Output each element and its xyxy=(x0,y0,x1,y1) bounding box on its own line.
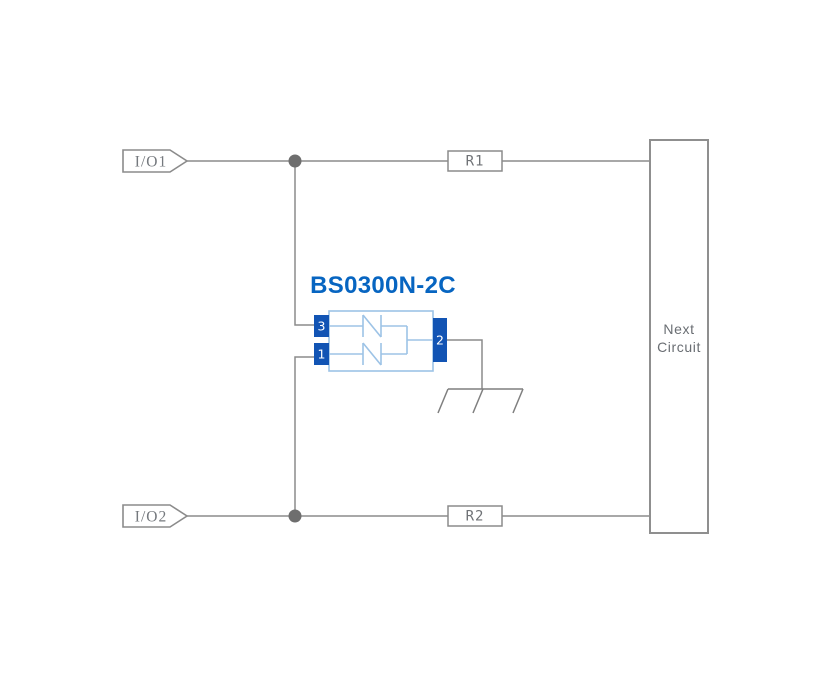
junction-dot-bottom xyxy=(289,510,302,523)
io2-connector: I/O2 xyxy=(123,505,187,527)
next-circuit-label-line2: Circuit xyxy=(657,339,701,355)
ground-hatch-middle xyxy=(473,389,483,413)
next-circuit-block: Next Circuit xyxy=(650,140,708,533)
resistor-r1: R1 xyxy=(448,151,502,171)
io2-label: I/O2 xyxy=(135,509,167,526)
tvs-pin-2: 2 xyxy=(433,318,447,362)
pin2-number: 2 xyxy=(436,333,444,348)
pin3-number: 3 xyxy=(318,319,326,334)
tvs-component: 3 1 2 xyxy=(314,311,447,371)
r2-label: R2 xyxy=(466,509,485,525)
tvs-pin-1: 1 xyxy=(314,343,329,365)
tvs-pin-3: 3 xyxy=(314,315,329,337)
wire-top-branch-to-pin3 xyxy=(295,161,314,325)
part-number-label: BS0300N-2C xyxy=(310,272,456,299)
pin1-number: 1 xyxy=(318,347,326,362)
circuit-schematic: I/O1 I/O2 R1 R2 Next Circuit BS0300N-2C xyxy=(0,0,832,675)
io1-connector: I/O1 xyxy=(123,150,187,172)
wire-bottom-branch-to-pin1 xyxy=(295,357,314,516)
r1-label: R1 xyxy=(466,154,485,170)
resistor-r2: R2 xyxy=(448,506,502,526)
wire-pin2-to-ground xyxy=(447,340,482,389)
ground-hatch-right xyxy=(513,389,523,413)
schematic-canvas: I/O1 I/O2 R1 R2 Next Circuit BS0300N-2C xyxy=(0,0,832,675)
ground-hatch-left xyxy=(438,389,448,413)
io1-label: I/O1 xyxy=(135,154,167,171)
junction-dot-top xyxy=(289,155,302,168)
next-circuit-label-line1: Next xyxy=(663,321,694,337)
ground-symbol xyxy=(438,389,523,413)
